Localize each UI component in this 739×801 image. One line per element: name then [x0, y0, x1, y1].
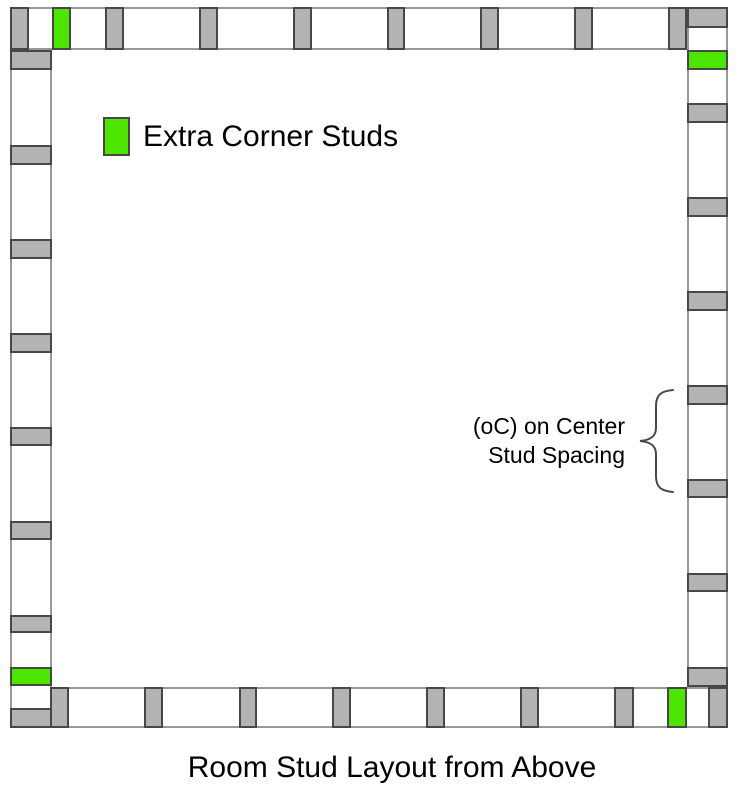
stud-top-8 — [668, 7, 687, 50]
stud-left-5 — [10, 427, 52, 446]
stud-top-6 — [480, 7, 499, 50]
oc-spacing-annotation: (oC) on Center Stud Spacing — [473, 412, 625, 470]
stud-right-8 — [687, 667, 728, 687]
annotation-line-2: Stud Spacing — [473, 441, 625, 470]
stud-right-corner — [687, 7, 728, 28]
stud-bottom-3 — [239, 687, 257, 728]
stud-left-corner — [10, 708, 52, 728]
stud-bottom-2 — [144, 687, 163, 728]
stud-bottom-5 — [426, 687, 445, 728]
diagram-caption: Room Stud Layout from Above — [0, 751, 739, 785]
stud-right-4 — [687, 291, 728, 311]
annotation-line-1: (oC) on Center — [473, 412, 625, 441]
room-diagram: Extra Corner Studs (oC) on Center Stud S… — [0, 0, 739, 801]
extra-corner-stud-swatch — [103, 117, 130, 156]
stud-top-2 — [105, 7, 124, 50]
extra-corner-stud-bottom-extra — [667, 687, 687, 728]
stud-bottom-1 — [50, 687, 69, 728]
extra-corner-stud-top-extra — [52, 7, 71, 50]
stud-bottom-corner — [708, 687, 728, 728]
stud-top-corner — [10, 7, 29, 50]
stud-bottom-6 — [520, 687, 539, 728]
stud-left-7 — [10, 615, 52, 633]
curly-brace-icon — [632, 384, 678, 496]
stud-right-2 — [687, 103, 728, 123]
stud-right-7 — [687, 573, 728, 592]
extra-corner-stud-right-extra — [687, 50, 728, 70]
stud-bottom-4 — [332, 687, 351, 728]
stud-left-4 — [10, 333, 52, 353]
stud-left-1 — [10, 50, 52, 70]
stud-bottom-7 — [614, 687, 634, 728]
legend: Extra Corner Studs — [103, 117, 398, 156]
stud-right-3 — [687, 197, 728, 217]
extra-corner-stud-left-extra — [10, 667, 52, 686]
stud-top-4 — [293, 7, 312, 50]
stud-left-3 — [10, 239, 52, 259]
stud-right-6 — [687, 479, 728, 498]
stud-right-5 — [687, 385, 728, 405]
stud-left-2 — [10, 145, 52, 165]
stud-left-6 — [10, 521, 52, 540]
stud-top-7 — [574, 7, 593, 50]
legend-label: Extra Corner Studs — [143, 117, 398, 156]
stud-top-5 — [387, 7, 405, 50]
stud-top-3 — [199, 7, 218, 50]
